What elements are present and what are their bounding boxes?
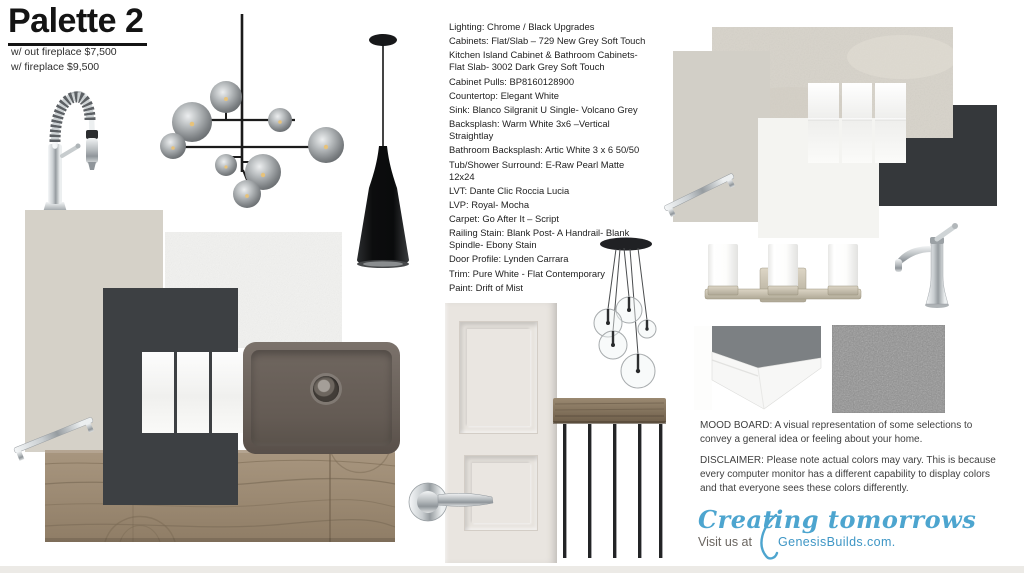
spec-line: Flat Slab- 3002 Dark Grey Soft Touch bbox=[449, 61, 699, 73]
artic-white-backsplash-tiles bbox=[808, 83, 906, 163]
spec-line: Backsplash: Warm White 3x6 –Vertical bbox=[449, 118, 699, 130]
spec-line: Cabinet Pulls: BP8160128900 bbox=[449, 76, 699, 88]
cabinet-pull-left bbox=[8, 405, 108, 465]
notes-block: MOOD BOARD: A visual representation of s… bbox=[700, 419, 1024, 503]
sink-basin bbox=[251, 350, 392, 446]
spec-item: Cabinets: Flat/Slab – 729 New Grey Soft … bbox=[449, 35, 699, 47]
spec-item: Backsplash: Warm White 3x6 –VerticalStra… bbox=[449, 118, 699, 142]
tile bbox=[842, 83, 873, 163]
spec-line: Kitchen Island Cabinet & Bathroom Cabine… bbox=[449, 49, 699, 61]
note-line: every computer monitor has a different c… bbox=[700, 468, 1024, 482]
spec-line: Sink: Blanco Silgranit U Single- Volcano… bbox=[449, 104, 699, 116]
bathroom-faucet bbox=[885, 218, 960, 310]
spec-line: Bathroom Backsplash: Artic White 3 x 6 5… bbox=[449, 144, 699, 156]
spec-item: Countertop: Elegant White bbox=[449, 90, 699, 102]
carpet-sample bbox=[832, 325, 945, 413]
genesis-builds-logo: Creating tomorrows Visit us at GenesisBu… bbox=[698, 505, 1018, 565]
baseboard-trim-sample bbox=[694, 322, 825, 411]
spec-line: Countertop: Elegant White bbox=[449, 90, 699, 102]
sink-drain bbox=[313, 376, 339, 402]
price-with-fireplace: w/ fireplace $9,500 bbox=[11, 61, 99, 73]
bathroom-vanity-light bbox=[703, 240, 863, 305]
price-without-fireplace: w/ out fireplace $7,500 bbox=[11, 46, 117, 58]
spec-item: Kitchen Island Cabinet & Bathroom Cabine… bbox=[449, 49, 699, 73]
spec-item: Bathroom Backsplash: Artic White 3 x 6 5… bbox=[449, 144, 699, 156]
black-cone-pendant-light bbox=[352, 28, 416, 276]
mood-board-note: MOOD BOARD: A visual representation of s… bbox=[700, 419, 1024, 447]
spec-line: Cabinets: Flat/Slab – 729 New Grey Soft … bbox=[449, 35, 699, 47]
spec-item: Sink: Blanco Silgranit U Single- Volcano… bbox=[449, 104, 699, 116]
tile bbox=[212, 352, 244, 433]
logo-tagline: Creating tomorrows bbox=[698, 505, 1018, 534]
door-lever-handle bbox=[398, 473, 498, 531]
note-line: DISCLAIMER: Please note actual colors ma… bbox=[700, 454, 1024, 468]
warm-white-backsplash-tiles bbox=[142, 352, 244, 433]
visit-us-at-label: Visit us at bbox=[698, 535, 752, 549]
disclaimer-note: DISCLAIMER: Please note actual colors ma… bbox=[700, 454, 1024, 496]
door-panel-top bbox=[459, 321, 538, 434]
stair-railing-sample bbox=[553, 396, 668, 562]
spec-item: Lighting: Chrome / Black Upgrades bbox=[449, 21, 699, 33]
spec-line: Straightlay bbox=[449, 130, 699, 142]
tile bbox=[142, 352, 174, 433]
note-line: MOOD BOARD: A visual representation of s… bbox=[700, 419, 1024, 433]
website-link[interactable]: GenesisBuilds.com. bbox=[778, 535, 896, 549]
spec-item: Cabinet Pulls: BP8160128900 bbox=[449, 76, 699, 88]
glass-globe-pendant-cluster bbox=[558, 234, 668, 396]
mood-board-slide: Palette 2 w/ out fireplace $7,500 w/ fir… bbox=[0, 0, 1024, 573]
tile bbox=[177, 352, 209, 433]
note-line: convey a general idea or feeling about y… bbox=[700, 433, 1024, 447]
sputnik-chandelier bbox=[155, 12, 350, 212]
volcano-grey-kitchen-sink bbox=[243, 342, 400, 454]
kitchen-faucet bbox=[24, 80, 100, 218]
bottom-edge-strip bbox=[0, 566, 1024, 573]
cabinet-pull-right bbox=[656, 165, 744, 220]
page-title: Palette 2 bbox=[8, 2, 147, 46]
tile bbox=[875, 83, 906, 163]
note-line: and that everyone sees these colors diff… bbox=[700, 482, 1024, 496]
tile bbox=[808, 83, 839, 163]
spec-line: Lighting: Chrome / Black Upgrades bbox=[449, 21, 699, 33]
logo-g-swoosh-icon bbox=[755, 513, 781, 561]
